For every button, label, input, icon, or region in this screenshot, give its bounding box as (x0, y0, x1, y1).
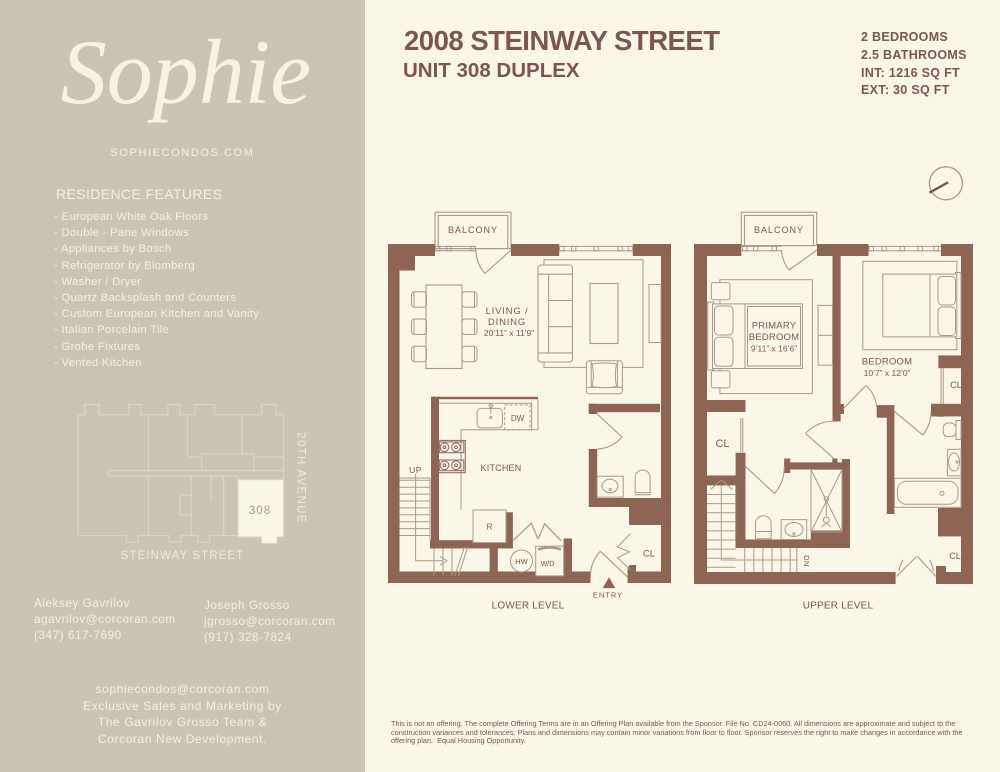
svg-text:DN: DN (802, 555, 811, 567)
svg-text:9’11” x 16’6”: 9’11” x 16’6” (751, 344, 797, 354)
svg-text:R: R (487, 523, 493, 532)
svg-text:HW: HW (515, 557, 528, 566)
svg-text:10’7” x 12’0”: 10’7” x 12’0” (864, 368, 911, 378)
svg-text:ENTRY: ENTRY (593, 591, 623, 600)
svg-text:308: 308 (249, 505, 271, 517)
svg-text:W/D: W/D (541, 561, 555, 568)
svg-text:BEDROOM: BEDROOM (749, 332, 800, 343)
svg-text:PRIMARY: PRIMARY (752, 321, 797, 332)
svg-text:DINING: DINING (488, 317, 526, 328)
svg-text:KITCHEN: KITCHEN (481, 463, 522, 473)
svg-text:CL: CL (715, 438, 729, 450)
svg-text:LOWER LEVEL: LOWER LEVEL (492, 601, 565, 612)
svg-text:CL: CL (643, 549, 655, 560)
svg-text:BALCONY: BALCONY (448, 225, 498, 235)
svg-text:20’11” x 11’9”: 20’11” x 11’9” (484, 328, 534, 338)
svg-text:BEDROOM: BEDROOM (862, 357, 913, 368)
svg-text:LIVING /: LIVING / (486, 306, 529, 317)
svg-text:CL: CL (949, 551, 961, 561)
svg-text:DW: DW (511, 414, 525, 423)
svg-text:CL: CL (950, 380, 962, 390)
svg-text:BALCONY: BALCONY (754, 225, 804, 235)
svg-text:UPPER LEVEL: UPPER LEVEL (803, 601, 874, 612)
svg-text:UP: UP (409, 465, 422, 475)
